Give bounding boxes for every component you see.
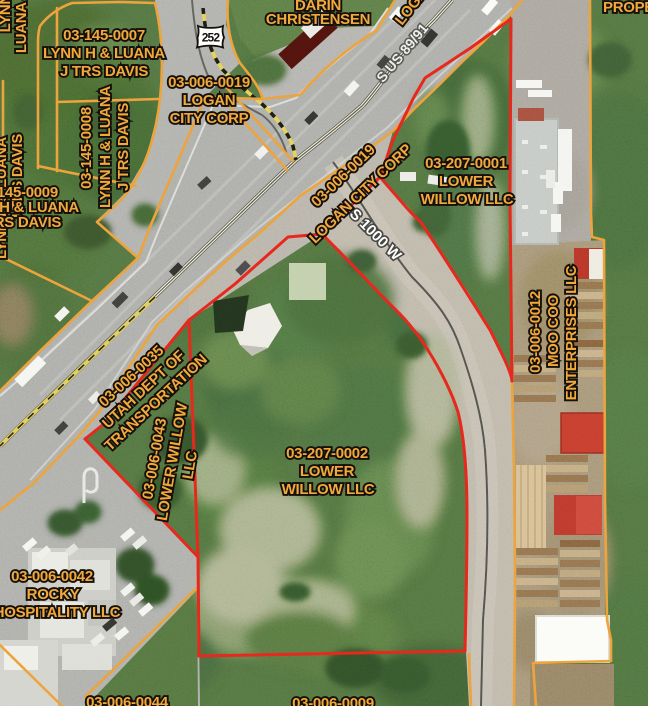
svg-text:HOSPITALITY LLC: HOSPITALITY LLC [0, 604, 121, 621]
svg-text:LUANA J: LUANA J [13, 0, 30, 53]
svg-text:03-006-0044: 03-006-0044 [86, 694, 169, 706]
svg-text:03-006-0012: 03-006-0012 [527, 291, 544, 373]
svg-text:LYNN H: LYNN H [0, 0, 14, 32]
svg-text:WILLOW LLC: WILLOW LLC [282, 481, 375, 498]
svg-text:03-006-0009: 03-006-0009 [292, 695, 374, 706]
svg-text:03-207-0002: 03-207-0002 [286, 445, 368, 462]
svg-text:J TRS DAVIS: J TRS DAVIS [0, 214, 61, 231]
svg-text:LOWER: LOWER [439, 173, 494, 190]
svg-text:PROPE: PROPE [603, 0, 648, 16]
svg-text:03-145-0007: 03-145-0007 [63, 27, 145, 44]
svg-text:ENTERPRISES LLC: ENTERPRISES LLC [563, 265, 580, 400]
svg-text:03-207-0001: 03-207-0001 [425, 155, 507, 172]
svg-text:03-145-0008: 03-145-0008 [78, 107, 95, 189]
svg-text:LOGAN: LOGAN [183, 92, 236, 109]
svg-text:ROCKY: ROCKY [27, 586, 80, 603]
svg-text:CHRISTENSEN: CHRISTENSEN [266, 11, 370, 28]
svg-text:WILLOW LLC: WILLOW LLC [421, 191, 514, 208]
svg-text:J TRS DAVIS: J TRS DAVIS [60, 63, 148, 80]
svg-text:LYNN H & LUANA: LYNN H & LUANA [97, 86, 114, 208]
svg-text:252: 252 [202, 31, 221, 45]
svg-text:J TRS DAVIS: J TRS DAVIS [115, 103, 132, 191]
svg-text:LYNN H & LUANA: LYNN H & LUANA [43, 45, 165, 62]
svg-text:03-006-0019: 03-006-0019 [168, 74, 250, 91]
svg-text:MOO COO: MOO COO [545, 294, 562, 367]
svg-text:03-006-0042: 03-006-0042 [11, 568, 93, 585]
svg-text:CITY CORP: CITY CORP [170, 110, 249, 127]
svg-text:LOWER: LOWER [300, 463, 355, 480]
